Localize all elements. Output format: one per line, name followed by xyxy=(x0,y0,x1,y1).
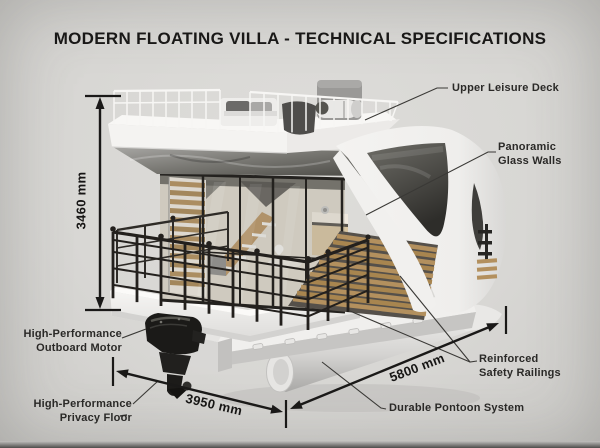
label-outboard-motor: High-Performance Outboard Motor xyxy=(14,327,122,355)
dimension-height: 3460 mm xyxy=(74,161,89,241)
infographic-canvas: MODERN FLOATING VILLA - TECHNICAL SPECIF… xyxy=(0,0,600,448)
label-panoramic-glass-walls: Panoramic Glass Walls xyxy=(498,140,562,168)
page-title: MODERN FLOATING VILLA - TECHNICAL SPECIF… xyxy=(0,29,600,49)
deck-chair xyxy=(282,101,316,134)
villa-illustration xyxy=(0,0,600,448)
label-pontoon-system: Durable Pontoon System xyxy=(389,401,524,415)
label-safety-railings: Reinforced Safety Railings xyxy=(479,352,561,380)
rim-wood-slats xyxy=(477,258,497,279)
label-privacy-floor: High-Performance Privacy Floor xyxy=(24,397,132,425)
bottom-shadow-strip xyxy=(0,441,600,448)
leader-outboard-motor xyxy=(122,329,146,338)
label-upper-leisure-deck: Upper Leisure Deck xyxy=(452,81,559,95)
leader-privacy-floor xyxy=(133,381,158,404)
